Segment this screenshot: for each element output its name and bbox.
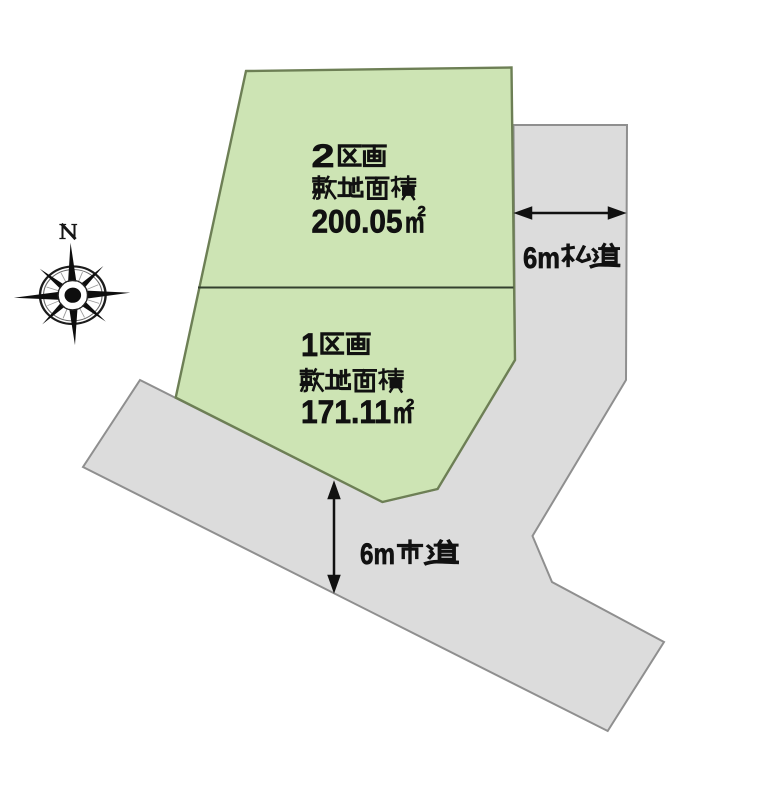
svg-text:2: 2 <box>418 203 426 220</box>
svg-text:6m: 6m <box>523 242 560 275</box>
svg-text:1: 1 <box>301 327 318 363</box>
svg-text:2: 2 <box>312 138 335 174</box>
svg-text:171.11: 171.11 <box>301 394 391 430</box>
svg-text:6m: 6m <box>360 538 395 571</box>
svg-text:200.05: 200.05 <box>312 204 403 240</box>
svg-text:2: 2 <box>406 396 414 413</box>
